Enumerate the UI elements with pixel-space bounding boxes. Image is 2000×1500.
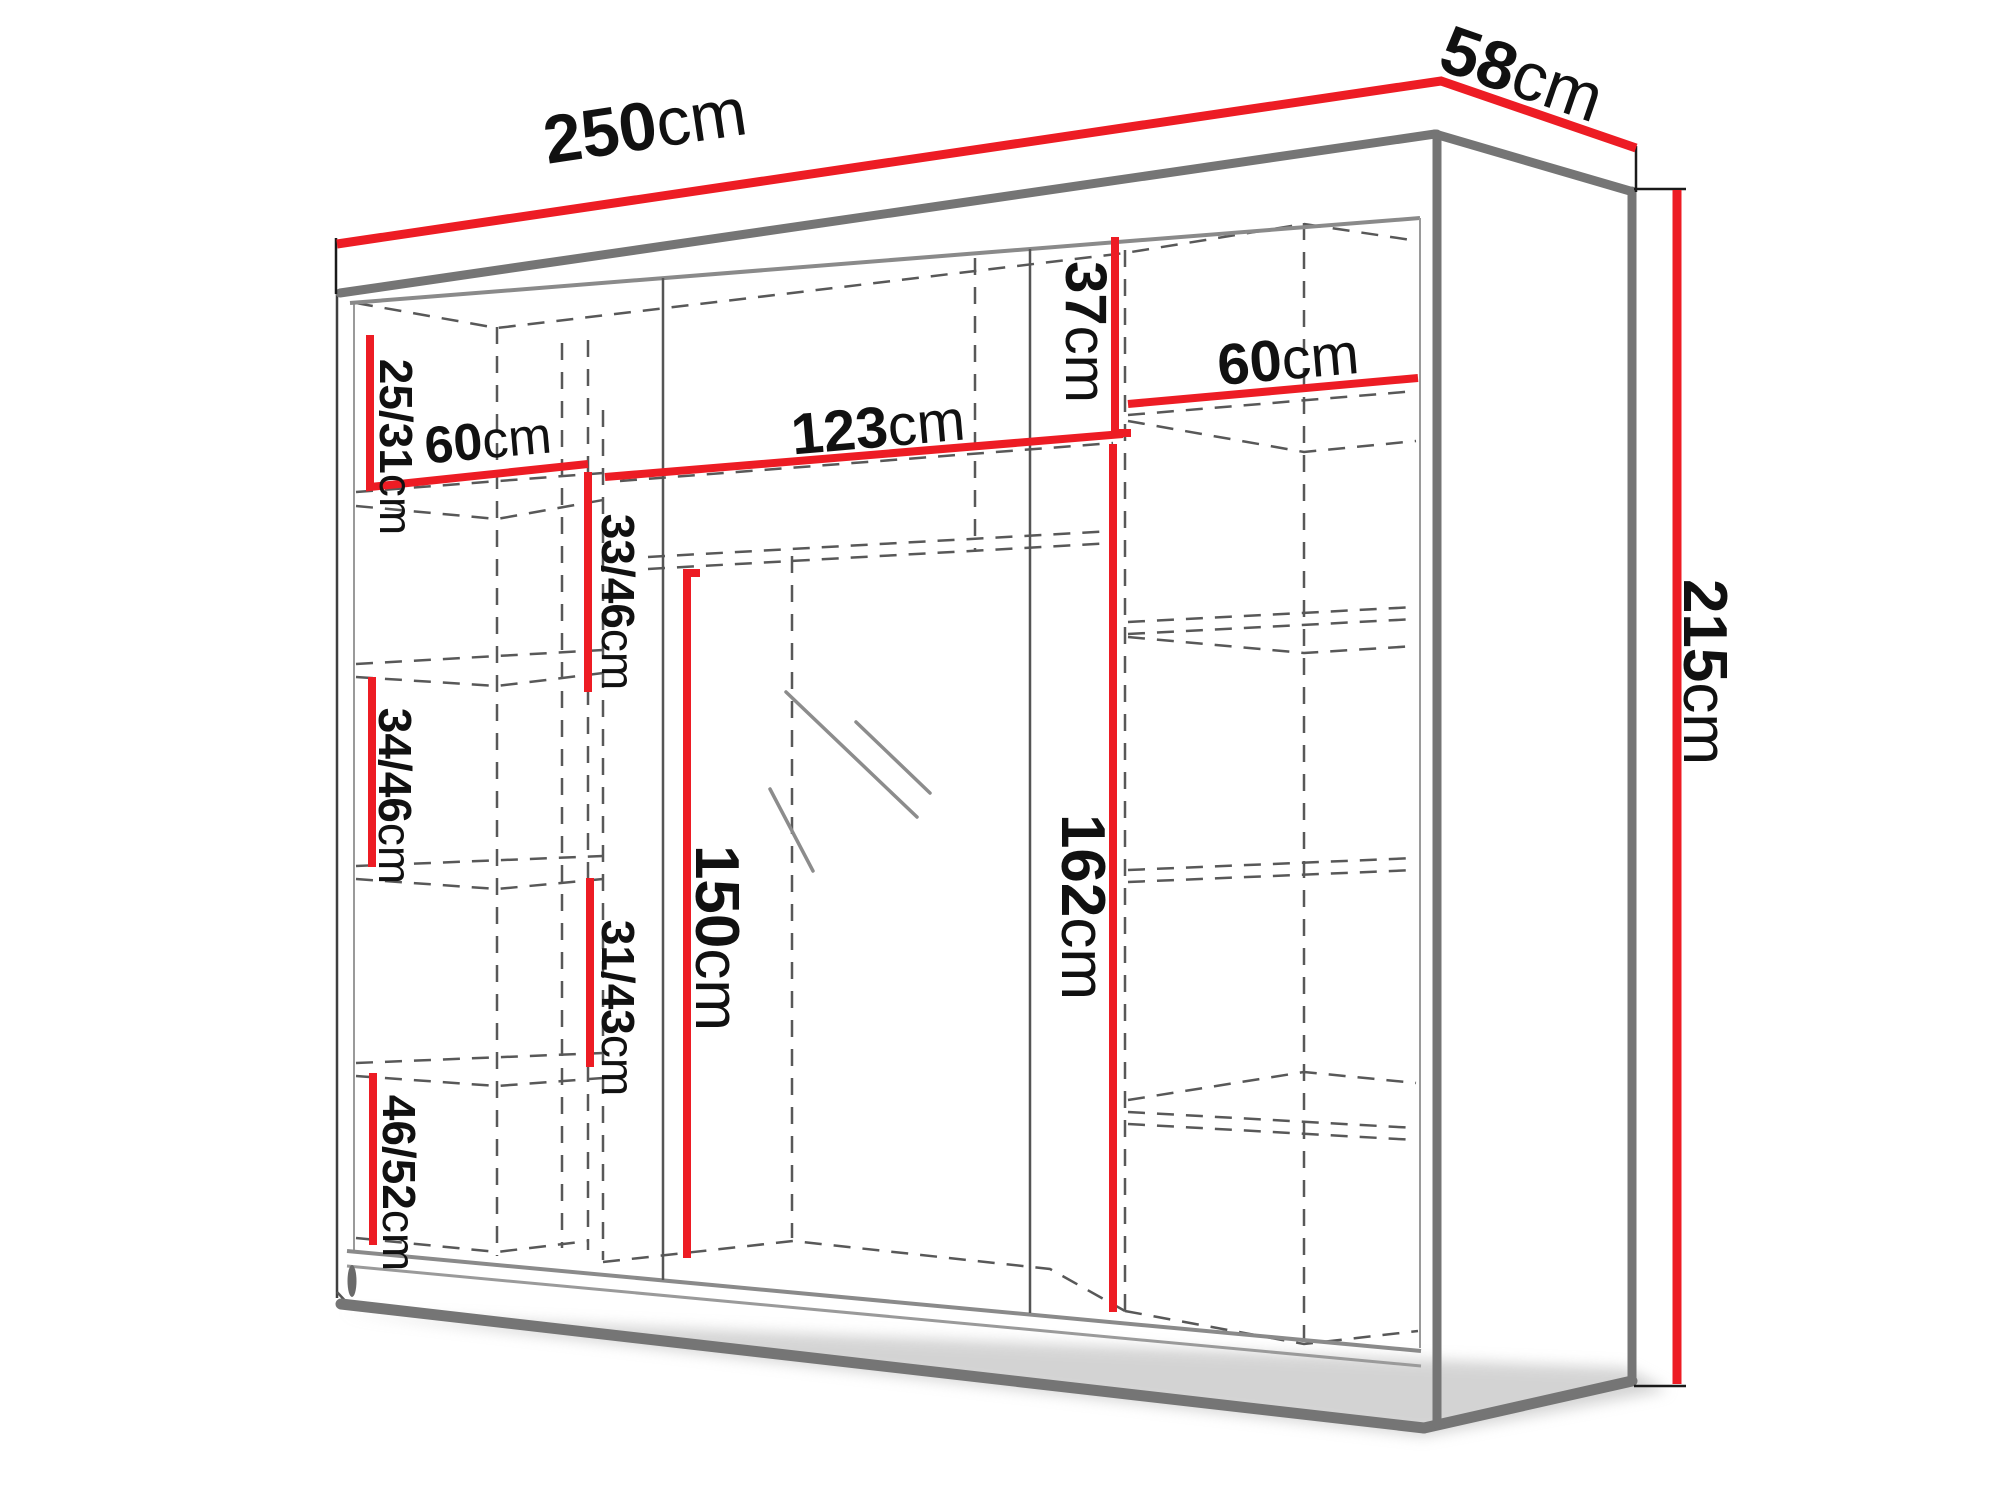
dim-label-34-46: 34/46cm [369,708,421,884]
dim-label-depth-58: 58cm [1431,11,1613,137]
hanging-rod-dashed [648,543,1113,569]
shelf-edge-dashed [1128,870,1416,882]
shelf-edge-dashed [1128,619,1416,634]
dim-label-height-215: 215cm [1671,579,1740,765]
dim-label-150: 150cm [683,845,752,1031]
dim-label-width-250: 250cm [538,73,751,178]
dim-label-60-right: 60cm [1215,320,1362,397]
wardrobe-structure [337,134,1632,1428]
hanging-rod-dashed [648,531,1113,557]
shelf-edge-dashed [1128,607,1416,622]
shelf-edge-dashed [1128,858,1416,870]
dimension-labels: 250cm 58cm 215cm 25/31cm 60cm 33/46cm 34… [369,11,1740,1271]
dimension-lines [336,81,1686,1386]
dim-label-162: 162cm [1049,814,1118,1000]
mirror-shine-stroke [856,722,930,793]
dim-label-46-52: 46/52cm [373,1095,425,1271]
shelf-edge-dashed [1128,637,1416,653]
dim-label-33-46: 33/46cm [592,514,644,690]
shelf-edge-dashed [356,1076,603,1086]
shelf-edge-dashed [1128,1072,1416,1100]
ceiling-back-edge-dashed [356,224,1418,328]
dim-label-31-43: 31/43cm [592,920,644,1096]
dim-label-37: 37cm [1054,261,1119,403]
diagram-canvas: 250cm 58cm 215cm 25/31cm 60cm 33/46cm 34… [0,0,2000,1500]
top-front-edge [340,134,1435,293]
door-roller [348,1265,357,1297]
shelf-edge-dashed [356,1053,603,1063]
bottom-rail-line [347,1251,1421,1351]
shelf-edge-dashed [356,673,603,686]
top-track-line [350,218,1420,303]
shelf-edge-dashed [1128,421,1416,452]
dim-label-60-left: 60cm [422,407,554,476]
dim-label-25-31: 25/31cm [370,359,422,535]
dim-label-123: 123cm [788,387,967,467]
wardrobe-dimension-diagram: 250cm 58cm 215cm 25/31cm 60cm 33/46cm 34… [0,0,2000,1500]
top-side-edge [1435,134,1630,191]
mirror-shine-stroke [786,692,917,817]
shelf-edge-dashed [356,650,603,664]
